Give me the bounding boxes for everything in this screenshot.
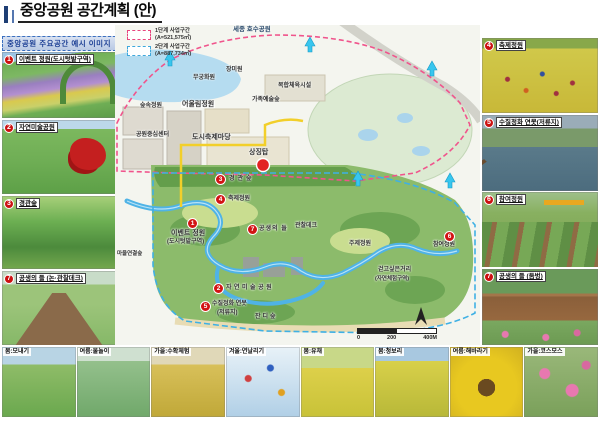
title-bar-icon	[4, 6, 8, 23]
page-header: 중앙공원 공간계획 (안)	[4, 3, 162, 23]
map-label-nature-art: 자연미술공원	[226, 285, 274, 292]
photo-autumn-harvest: 가을:수확체험	[151, 347, 225, 417]
photo-caption: 겨울:연날리기	[227, 348, 266, 356]
garden-arch-shape	[60, 60, 116, 104]
red-sculpture-shape	[70, 138, 106, 170]
map-label-village-forest: 마을연결숲	[117, 251, 142, 258]
photo-festival-garden: 4 축제정원	[482, 38, 598, 113]
marker-number: 5	[484, 118, 494, 128]
photo-label: 6 참여정원	[484, 194, 526, 205]
photo-autumn-cosmos: 가을:코스모스	[524, 347, 598, 417]
marker-number: 1	[4, 55, 14, 65]
legend-phase2: 2단계 사업구간 (A=887,734㎡)	[127, 44, 191, 57]
map-marker-4: 4	[215, 194, 226, 205]
photo-label-text: 자연미술공원	[16, 122, 58, 133]
phase1-swatch	[127, 30, 151, 40]
map-label-lawn-forest: 잔디숲	[255, 314, 278, 321]
map-label-festival-garden: 축제정원	[228, 196, 250, 203]
map-label-theme-garden: 주제정원	[349, 241, 371, 248]
photo-spring-canola: 봄:유채	[301, 347, 375, 417]
marker-number: 6	[484, 195, 494, 205]
map-legend: 1단계 사업구간 (A=521,575㎡) 2단계 사업구간 (A=887,73…	[127, 28, 191, 60]
map-label-lake: 세종 호수공원	[233, 26, 271, 33]
photo-participation-garden: 6 참여정원	[482, 192, 598, 267]
map-marker-1: 1	[187, 218, 198, 229]
pond-boardwalk-shape	[482, 145, 598, 191]
map-label-retention-basin: (저류지)	[217, 310, 238, 317]
photo-label: 7 공생의 들 (논·관찰데크)	[4, 273, 86, 284]
map-label-nature-zone: (자연체험구역)	[375, 276, 409, 283]
photo-label: 1 이벤트 정원(도시텃밭구역)	[4, 54, 94, 65]
seasonal-photo-strip: 봄:모내기 여름:물놀이 가을:수확체험 겨울:연날리기 봄:유채 봄:청보리 …	[2, 347, 598, 417]
marker-number: 2	[4, 123, 14, 133]
photo-label-text: 공생의 들 (논·관찰데크)	[16, 273, 86, 284]
photo-label-text: 축제정원	[496, 40, 526, 51]
map-label-harmony: 어울림정원	[181, 101, 215, 108]
scale-400: 400M	[423, 335, 437, 341]
photo-label-text: 경관숲	[16, 198, 40, 209]
marker-number: 3	[4, 199, 14, 209]
photo-label-text: 공생의 들 (둠벙)	[496, 271, 546, 282]
map-label-family-art: 가족예술숲	[252, 97, 280, 104]
map-scale-bar: 0 200 400M	[357, 328, 437, 341]
map-label-forest-garden: 숲속정원	[140, 103, 162, 110]
map-label-festival-ground: 도시축제마당	[192, 134, 231, 141]
photo-lotus-pond: 7 공생의 들 (둠벙)	[482, 269, 598, 345]
photo-scenic-forest: 3 경관숲	[2, 196, 116, 269]
map-label-rose: 장미원	[226, 67, 243, 74]
map-label-symbiosis: 공생의 들	[259, 226, 288, 233]
photo-label: 3 경관숲	[4, 198, 40, 209]
photo-label-text: 이벤트 정원(도시텃밭구역)	[16, 54, 94, 65]
sidebar-header: 중앙공원 주요공간 예시 이미지	[2, 36, 116, 51]
scale-200: 200	[387, 335, 396, 341]
photo-spring-planting: 봄:모내기	[2, 347, 76, 417]
map-label-observation-deck: 관찰데크	[295, 223, 317, 230]
map-marker-5: 5	[200, 301, 211, 312]
photo-label: 7 공생의 들 (둠벙)	[484, 271, 546, 282]
photo-event-garden: 1 이벤트 정원(도시텃밭구역)	[2, 52, 116, 118]
photo-label-text: 참여정원	[496, 194, 526, 205]
marker-number: 7	[484, 272, 494, 282]
photo-label-text: 수질정화 연못(저류지)	[496, 117, 562, 128]
vegetable-beds-shape	[482, 222, 598, 267]
photo-winter-kites: 겨울:연날리기	[226, 347, 300, 417]
map-label-participation: 참여정원	[433, 242, 455, 249]
map-label-park-center: 공원중심센터	[136, 132, 169, 139]
map-label-scenic: 경관숲	[229, 176, 255, 183]
photo-caption: 여름:해바라기	[451, 348, 490, 356]
photo-caption: 가을:코스모스	[525, 348, 564, 356]
boardwalk-shape	[2, 293, 116, 345]
map-marker-7: 7	[247, 224, 258, 235]
map-label-sports: 복합체육시설	[278, 83, 311, 90]
photo-summer-sunflower: 여름:해바라기	[450, 347, 524, 417]
phase2-label: 2단계 사업구간	[155, 44, 191, 51]
site-plan-map: 1단계 사업구간 (A=521,575㎡) 2단계 사업구간 (A=887,73…	[115, 25, 480, 345]
photo-nature-art-park: 2 자연미술공원	[2, 120, 116, 194]
scale-0: 0	[357, 335, 360, 341]
marker-number: 7	[4, 274, 14, 284]
scale-bar-graphic	[357, 328, 437, 334]
phase1-label: 1단계 사업구간	[155, 28, 191, 35]
legend-phase1: 1단계 사업구간 (A=521,575㎡)	[127, 28, 191, 41]
photo-label: 4 축제정원	[484, 40, 526, 51]
map-marker-3: 3	[215, 174, 226, 185]
phase2-swatch	[127, 46, 151, 56]
photo-purification-pond: 5 수질정화 연못(저류지)	[482, 115, 598, 191]
photo-summer-water-play: 여름:물놀이	[77, 347, 151, 417]
map-label-mugunghwa: 무궁화원	[193, 75, 215, 82]
map-graphics	[115, 25, 480, 345]
photo-caption: 봄:모내기	[3, 348, 31, 356]
map-marker-6: 6	[444, 231, 455, 242]
map-label-symbol-tower: 상징탑	[249, 149, 268, 156]
phase2-area: (A=887,734㎡)	[155, 51, 191, 58]
map-label-purification-pond: 수질정화 연못	[212, 301, 247, 308]
phase1-area: (A=521,575㎡)	[155, 35, 191, 42]
pergola-shape	[544, 200, 584, 205]
title-bar-icon-2	[12, 10, 14, 23]
photo-caption: 여름:물놀이	[78, 348, 112, 356]
map-label-walkable-street: 걷고싶은거리	[378, 267, 411, 274]
photo-caption: 봄:유채	[302, 348, 325, 356]
map-label-event-garden: 이벤트 정원	[171, 230, 205, 237]
photo-rice-field-deck: 7 공생의 들 (논·관찰데크)	[2, 271, 116, 345]
photo-label: 5 수질정화 연못(저류지)	[484, 117, 562, 128]
page-title: 중앙공원 공간계획 (안)	[18, 3, 162, 23]
photo-label: 2 자연미술공원	[4, 122, 58, 133]
map-marker-2: 2	[213, 283, 224, 294]
photo-caption: 봄:청보리	[376, 348, 404, 356]
photo-spring-barley: 봄:청보리	[375, 347, 449, 417]
photo-caption: 가을:수확체험	[152, 348, 191, 356]
marker-number: 4	[484, 41, 494, 51]
map-label-event-garden-zone: (도시텃밭구역)	[167, 239, 204, 246]
